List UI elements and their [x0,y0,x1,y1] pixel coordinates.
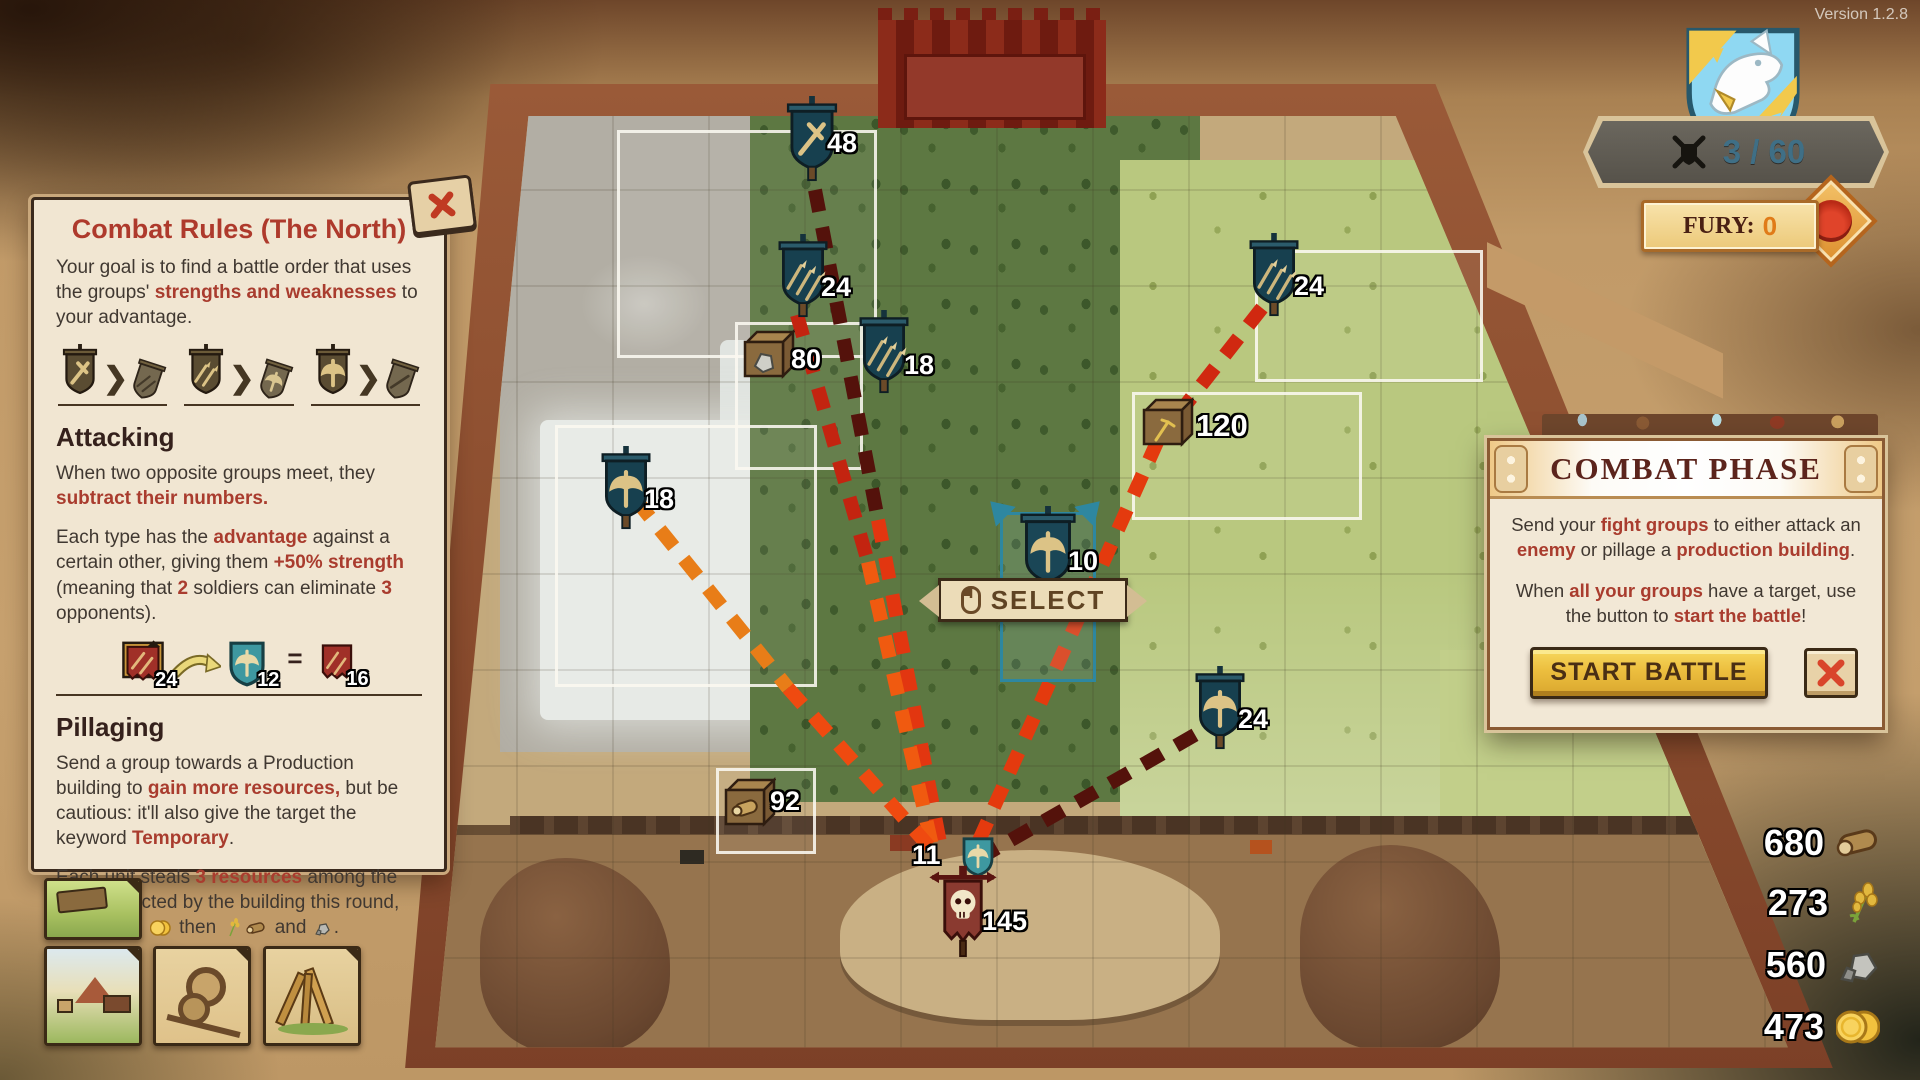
group-strength-label: 24 [821,274,851,301]
advantage-arrows-beats-axe: ❯ [184,344,293,406]
attacker-strength: 24 [155,669,177,692]
stone-crate-icon [741,328,795,382]
resource-wheat: 273 [1660,880,1880,926]
wood-log-icon [245,919,267,937]
group-strength-label: 48 [827,130,857,157]
combat-phase-panel: COMBAT PHASE Send your fight groups to e… [1487,438,1885,730]
gold-coins-icon [1836,1008,1880,1046]
pillage-value-label: 92 [770,788,800,815]
arrows-banner-icon [186,344,226,402]
group-strength-label: 10 [1068,548,1098,575]
gold-count: 473 [1764,1006,1824,1048]
combat-instructions-2: When all your groups have a target, use … [1510,579,1862,629]
combat-phase-body: Send your fight groups to either attack … [1490,499,1882,629]
production-building-sawmill[interactable]: 92 [722,776,776,830]
advantage-chevron-icon: ❯ [103,364,128,394]
wheat-icon [223,917,241,937]
attacker-banner: 24 [121,640,165,688]
attack-arrow-icon [171,649,221,679]
combat-rules-panel: Combat Rules (The North) Your goal is to… [31,197,447,872]
wood-log-icon [1836,825,1880,861]
game-screen: 48 24 80 [0,0,1920,1080]
pillage-value-label: 80 [791,346,821,373]
pillaging-heading: Pillaging [56,712,422,743]
card-village-thumbnail[interactable] [44,946,142,1046]
rules-panel-title: Combat Rules (The North) [56,214,422,245]
production-building-farm[interactable]: 120 [1140,396,1194,450]
wheat-icon [1840,882,1880,924]
result-banner: 16 [317,641,357,687]
card-mill-thumbnail[interactable] [153,946,251,1046]
advantage-diagram: ❯ ❯ [58,344,420,406]
resource-stone: 560 [1660,942,1880,988]
battle-progress-plaque: 3 / 60 [1583,116,1889,188]
card-farm-thumbnail[interactable] [44,878,142,940]
version-label: Version 1.2.8 [1815,6,1908,24]
wood-count: 680 [1764,822,1824,864]
arrows-banner-icon [123,354,170,410]
wheat-crate-icon [1140,396,1194,450]
advantage-chevron-icon: ❯ [356,364,381,394]
combat-buttons-row: START BATTLE [1490,645,1882,699]
fury-label: FURY: [1683,213,1755,240]
advantage-sword-beats-arrows: ❯ [58,344,167,406]
axe-banner-icon [313,344,353,402]
combat-phase-title: COMBAT PHASE [1550,451,1822,487]
rules-intro-paragraph: Your goal is to find a battle order that… [56,255,422,330]
equals-sign: = [287,643,302,674]
group-strength-label: 24 [1294,273,1324,300]
enemy-strength-label: 145 [982,908,1027,935]
plaque-face: 3 / 60 [1588,121,1884,183]
ornament-flourish-icon [1494,445,1528,493]
battle-progress-value: 3 / 60 [1723,133,1806,171]
axe-banner-icon [250,354,297,410]
combat-instructions-1: Send your fight groups to either attack … [1510,513,1862,563]
attacking-paragraph-1: When two opposite groups meet, they subt… [56,461,422,511]
fight-group-flag-axe[interactable]: 24 [1192,666,1248,750]
group-strength-label: 18 [904,352,934,379]
fight-group-flag-sword[interactable]: 48 [783,96,841,182]
sword-banner-icon [60,344,100,402]
defender-strength: 12 [257,669,279,692]
resource-gold: 473 [1660,1004,1880,1050]
crossed-swords-shield-icon [1667,130,1711,174]
wood-crate-icon [722,776,776,830]
fight-group-flag-arrows[interactable]: 18 [856,310,912,394]
stone-icon [1838,946,1880,984]
wheat-count: 273 [1768,882,1828,924]
ornament-flourish-icon [1844,445,1878,493]
combat-close-button[interactable] [1804,648,1858,698]
close-icon [426,189,457,220]
card-campfire-thumbnail[interactable] [263,946,361,1046]
stone-icon [314,919,332,937]
enemy-fortress [878,20,1106,128]
select-prompt-ribbon: SELECT [938,578,1128,622]
rules-close-button[interactable] [407,174,477,235]
stone-count: 560 [1766,944,1826,986]
enemy-horde-banner[interactable]: 145 [928,862,998,958]
defender-shield: 12 [227,640,267,688]
advantage-axe-beats-sword: ❯ [311,344,420,406]
sword-banner-icon [376,354,423,410]
pillaging-paragraph-1: Send a group towards a Production buildi… [56,751,422,851]
production-building-quarry[interactable]: 80 [741,328,795,382]
pillage-value-label: 120 [1196,410,1248,441]
result-strength: 16 [346,668,368,691]
group-strength-label: 18 [644,486,674,513]
fight-group-flag-arrows[interactable]: 24 [1246,233,1302,317]
attacking-heading: Attacking [56,422,422,453]
combat-phase-title-band: COMBAT PHASE [1490,441,1882,499]
fury-badge: FURY: 0 [1641,200,1819,252]
advantage-chevron-icon: ❯ [229,364,254,394]
gold-coins-icon [150,919,172,937]
fight-group-flag-axe[interactable]: 18 [598,446,654,530]
group-strength-label: 24 [1238,706,1268,733]
battle-example-diagram: 24 12 = [56,640,422,696]
mouse-left-click-icon [961,586,981,614]
start-battle-button[interactable]: START BATTLE [1530,647,1768,699]
close-icon [1816,658,1846,688]
attacking-paragraph-2: Each type has the advantage against a ce… [56,525,422,625]
select-label: SELECT [991,585,1106,616]
fury-value: 0 [1763,211,1777,242]
fight-group-flag-arrows[interactable]: 24 [775,234,831,318]
resource-wood: 680 [1660,820,1880,866]
